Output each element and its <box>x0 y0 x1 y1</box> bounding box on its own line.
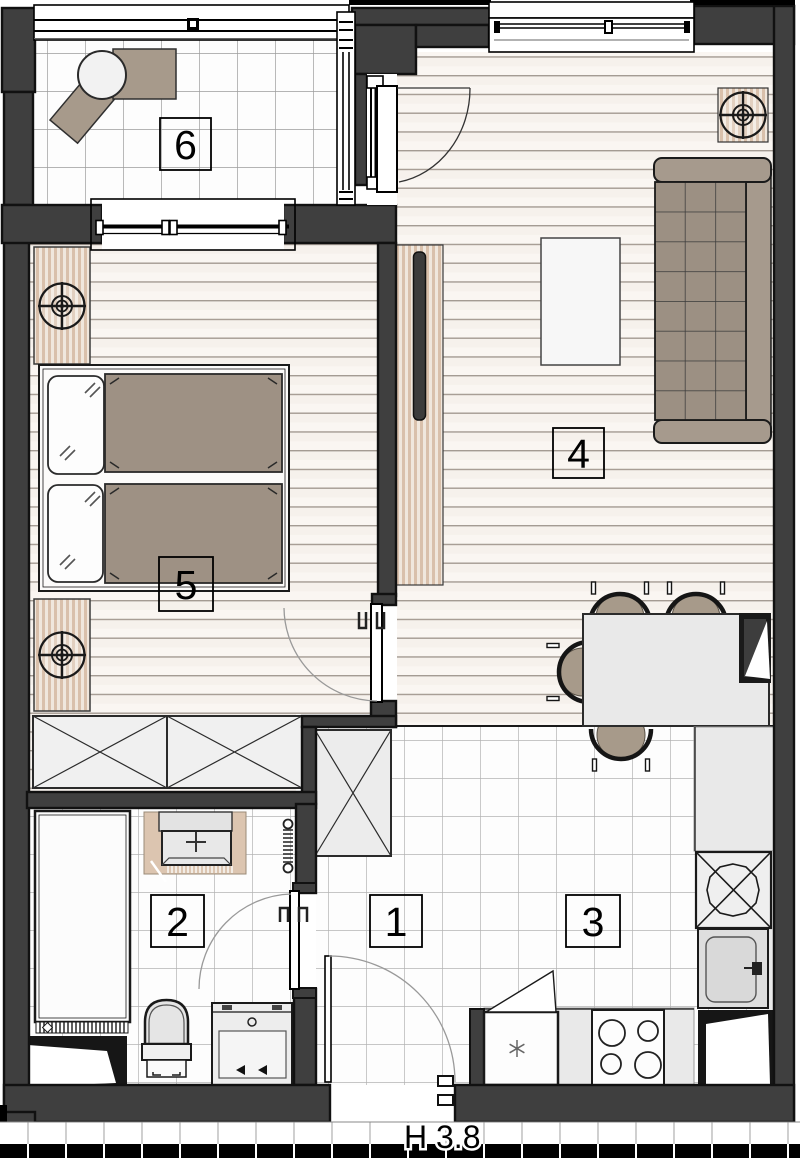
svg-text:2: 2 <box>166 899 189 945</box>
svg-text:Н 3.8: Н 3.8 <box>404 1119 480 1155</box>
svg-text:6: 6 <box>174 122 197 168</box>
svg-text:5: 5 <box>175 562 198 608</box>
svg-text:3: 3 <box>582 899 605 945</box>
svg-text:4: 4 <box>567 431 590 477</box>
svg-text:1: 1 <box>385 899 408 945</box>
